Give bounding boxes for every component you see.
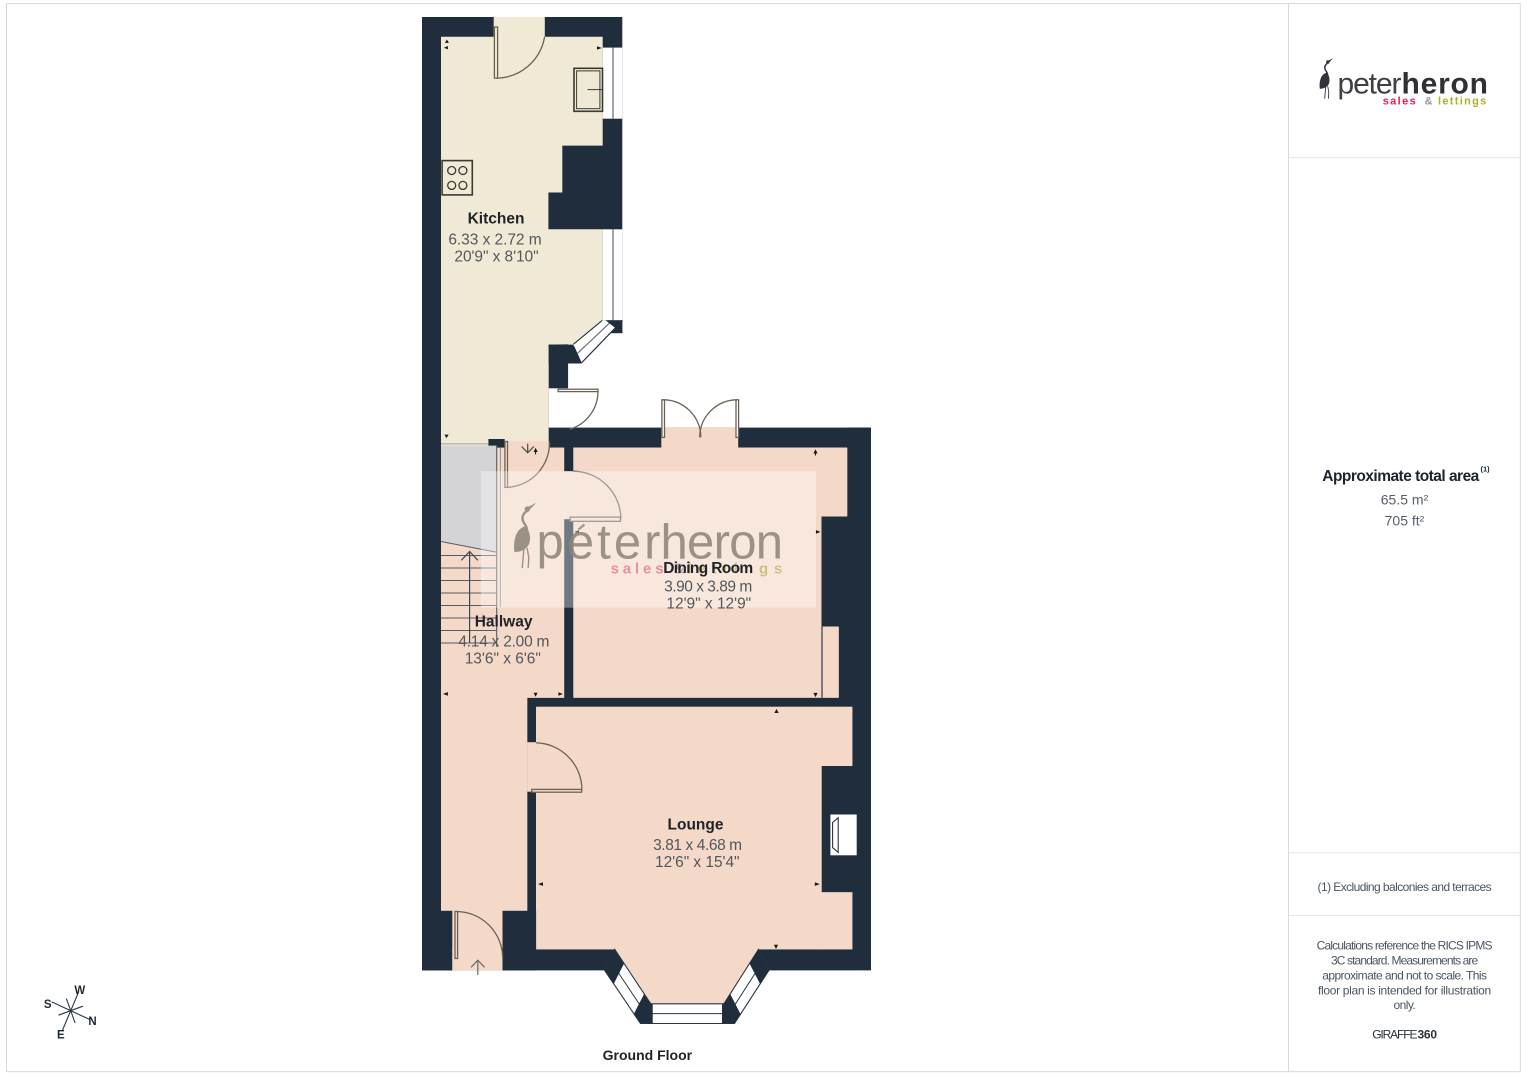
svg-text:Kitchen: Kitchen (468, 211, 525, 228)
svg-text:lettings: lettings (1438, 96, 1489, 108)
svg-text:20'9" x 8'10": 20'9" x 8'10" (454, 248, 538, 265)
svg-text:705 ft²: 705 ft² (1385, 513, 1425, 529)
svg-text:3.90 x 3.89 m: 3.90 x 3.89 m (664, 579, 752, 596)
svg-text:sales: sales (1383, 96, 1419, 108)
svg-text:12'9" x 12'9": 12'9" x 12'9" (666, 596, 751, 613)
svg-text:3C standard. Measurements are: 3C standard. Measurements are (1331, 954, 1479, 968)
svg-text:3.81 x 4.68 m: 3.81 x 4.68 m (653, 837, 742, 854)
svg-text:floor plan is intended for ill: floor plan is intended for illustration (1318, 984, 1491, 998)
svg-text:12'6" x 15'4": 12'6" x 15'4" (655, 854, 740, 871)
svg-text:6.33 x 2.72 m: 6.33 x 2.72 m (448, 231, 541, 248)
svg-text:Hallway: Hallway (475, 614, 533, 631)
svg-text:(1): (1) (1481, 465, 1491, 474)
svg-text:Calculations reference the RIC: Calculations reference the RICS IPMS (1317, 939, 1493, 953)
svg-text:(1) Excluding balconies and te: (1) Excluding balconies and terraces (1318, 880, 1492, 894)
svg-text:E: E (57, 1030, 65, 1042)
svg-text:360: 360 (1418, 1028, 1438, 1042)
svg-text:Approximate total area: Approximate total area (1322, 468, 1479, 485)
svg-text:N: N (88, 1016, 96, 1028)
svg-text:13'6" x 6'6": 13'6" x 6'6" (465, 650, 541, 667)
svg-text:GIRAFFE: GIRAFFE (1372, 1028, 1417, 1042)
svg-text:sales: sales (611, 560, 664, 577)
svg-text:Dining Room: Dining Room (663, 560, 753, 577)
svg-text:W: W (74, 985, 85, 997)
svg-text:Ground Floor: Ground Floor (603, 1047, 693, 1063)
svg-text:only.: only. (1394, 998, 1416, 1012)
svg-text:65.5 m²: 65.5 m² (1381, 492, 1429, 508)
svg-text:4.14 x 2.00 m: 4.14 x 2.00 m (458, 633, 549, 650)
svg-text:approximate and not to scale.: approximate and not to scale. This (1322, 969, 1487, 983)
svg-text:Lounge: Lounge (668, 816, 724, 833)
svg-text:&: & (1425, 96, 1433, 108)
svg-text:S: S (44, 999, 52, 1011)
